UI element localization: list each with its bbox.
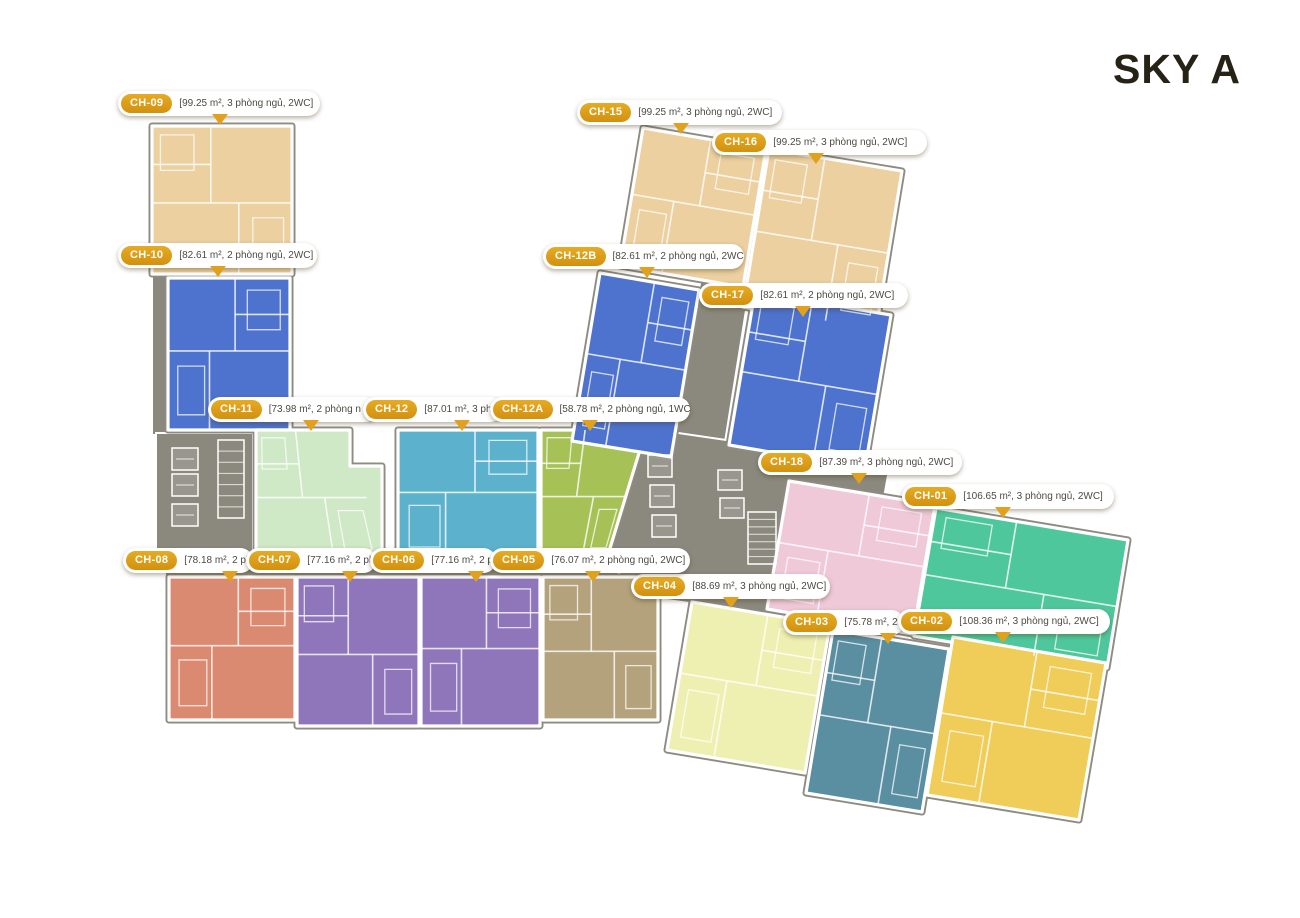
unit-info-text: [87.39 m², 3 phòng ngủ, 2WC] xyxy=(819,457,953,468)
label-pointer-icon xyxy=(212,114,228,125)
label-bubble: CH-10[82.61 m², 2 phòng ngủ, 2WC] xyxy=(118,243,317,268)
floor-plan-drawing xyxy=(0,0,1300,918)
unit-code-pill[interactable]: CH-05 xyxy=(493,551,544,570)
label-pointer-icon xyxy=(995,632,1011,643)
label-pointer-icon xyxy=(851,473,867,484)
unit-code-pill[interactable]: CH-02 xyxy=(901,612,952,631)
unit-label-CH-02[interactable]: CH-02[108.36 m², 3 phòng ngủ, 2WC] xyxy=(898,609,1110,634)
unit-info-text: [73.98 m², 2 phòng n xyxy=(269,404,361,415)
unit-CH-07[interactable] xyxy=(297,577,419,726)
unit-label-CH-12B[interactable]: CH-12B[82.61 m², 2 phòng ngủ, 2WC] xyxy=(543,244,744,269)
unit-label-CH-01[interactable]: CH-01[106.65 m², 3 phòng ngủ, 2WC] xyxy=(902,484,1114,509)
label-bubble: CH-12[87.01 m², 3 phò xyxy=(363,397,503,422)
label-bubble: CH-17[82.61 m², 2 phòng ngủ, 2WC] xyxy=(699,283,908,308)
unit-label-CH-06[interactable]: CH-06[77.16 m², 2 p xyxy=(370,548,496,573)
label-pointer-icon xyxy=(454,420,470,431)
unit-label-CH-08[interactable]: CH-08[78.18 m², 2 ph xyxy=(123,548,253,573)
page-title: SKY A xyxy=(1113,46,1241,93)
unit-code-pill[interactable]: CH-12A xyxy=(493,400,553,419)
label-bubble: CH-15[99.25 m², 3 phòng ngủ, 2WC] xyxy=(577,100,782,125)
label-pointer-icon xyxy=(808,153,824,164)
unit-label-CH-18[interactable]: CH-18[87.39 m², 3 phòng ngủ, 2WC] xyxy=(758,450,962,475)
label-bubble: CH-07[77.16 m², 2 ph xyxy=(246,548,376,573)
unit-label-CH-10[interactable]: CH-10[82.61 m², 2 phòng ngủ, 2WC] xyxy=(118,243,317,268)
unit-code-pill[interactable]: CH-11 xyxy=(211,400,262,419)
unit-CH-06[interactable] xyxy=(421,577,540,726)
unit-label-CH-17[interactable]: CH-17[82.61 m², 2 phòng ngủ, 2WC] xyxy=(699,283,908,308)
label-pointer-icon xyxy=(303,420,319,431)
unit-info-text: [99.25 m², 3 phòng ngủ, 2WC] xyxy=(179,98,313,109)
unit-code-pill[interactable]: CH-07 xyxy=(249,551,300,570)
label-pointer-icon xyxy=(723,597,739,608)
unit-code-pill[interactable]: CH-10 xyxy=(121,246,172,265)
unit-label-CH-07[interactable]: CH-07[77.16 m², 2 ph xyxy=(246,548,376,573)
unit-label-CH-09[interactable]: CH-09[99.25 m², 3 phòng ngủ, 2WC] xyxy=(118,91,320,116)
unit-info-text: [76.07 m², 2 phòng ngủ, 2WC] xyxy=(551,555,685,566)
unit-code-pill[interactable]: CH-01 xyxy=(905,487,956,506)
label-pointer-icon xyxy=(468,571,484,582)
label-pointer-icon xyxy=(639,267,655,278)
unit-CH-11[interactable] xyxy=(256,430,382,560)
unit-label-CH-11[interactable]: CH-11[73.98 m², 2 phòng n xyxy=(208,397,378,422)
unit-info-text: [99.25 m², 3 phòng ngủ, 2WC] xyxy=(773,137,907,148)
unit-info-text: [99.25 m², 3 phòng ngủ, 2WC] xyxy=(638,107,772,118)
label-bubble: CH-11[73.98 m², 2 phòng n xyxy=(208,397,378,422)
label-bubble: CH-08[78.18 m², 2 ph xyxy=(123,548,253,573)
label-bubble: CH-12A[58.78 m², 2 phòng ngủ, 1WC] xyxy=(490,397,690,422)
label-bubble: CH-18[87.39 m², 3 phòng ngủ, 2WC] xyxy=(758,450,962,475)
label-bubble: CH-01[106.65 m², 3 phòng ngủ, 2WC] xyxy=(902,484,1114,509)
unit-code-pill[interactable]: CH-15 xyxy=(580,103,631,122)
label-pointer-icon xyxy=(222,571,238,582)
unit-code-pill[interactable]: CH-12B xyxy=(546,247,606,266)
unit-info-text: [82.61 m², 2 phòng ngủ, 2WC] xyxy=(179,250,313,261)
unit-label-CH-16[interactable]: CH-16[99.25 m², 3 phòng ngủ, 2WC] xyxy=(712,130,927,155)
unit-info-text: [87.01 m², 3 phò xyxy=(424,404,497,415)
unit-info-text: [106.65 m², 3 phòng ngủ, 2WC] xyxy=(963,491,1103,502)
label-pointer-icon xyxy=(582,420,598,431)
floor-plan-page: CH-09[99.25 m², 3 phòng ngủ, 2WC]CH-15[9… xyxy=(0,0,1300,918)
label-pointer-icon xyxy=(995,507,1011,518)
unit-label-CH-03[interactable]: CH-03[75.78 m², 2 xyxy=(783,610,904,635)
label-pointer-icon xyxy=(673,123,689,134)
unit-code-pill[interactable]: CH-03 xyxy=(786,613,837,632)
unit-label-CH-15[interactable]: CH-15[99.25 m², 3 phòng ngủ, 2WC] xyxy=(577,100,782,125)
unit-info-text: [75.78 m², 2 xyxy=(844,617,897,628)
label-bubble: CH-02[108.36 m², 3 phòng ngủ, 2WC] xyxy=(898,609,1110,634)
label-pointer-icon xyxy=(795,306,811,317)
unit-info-text: [108.36 m², 3 phòng ngủ, 2WC] xyxy=(959,616,1099,627)
unit-CH-08[interactable] xyxy=(169,577,295,720)
label-pointer-icon xyxy=(880,633,896,644)
label-pointer-icon xyxy=(210,266,226,277)
unit-code-pill[interactable]: CH-08 xyxy=(126,551,177,570)
unit-code-pill[interactable]: CH-18 xyxy=(761,453,812,472)
unit-CH-12[interactable] xyxy=(398,430,538,560)
unit-label-CH-04[interactable]: CH-04[88.69 m², 3 phòng ngủ, 2WC] xyxy=(631,574,830,599)
unit-CH-02[interactable] xyxy=(927,637,1106,820)
label-bubble: CH-12B[82.61 m², 2 phòng ngủ, 2WC] xyxy=(543,244,744,269)
unit-code-pill[interactable]: CH-16 xyxy=(715,133,766,152)
label-bubble: CH-03[75.78 m², 2 xyxy=(783,610,904,635)
unit-label-CH-12[interactable]: CH-12[87.01 m², 3 phò xyxy=(363,397,503,422)
unit-code-pill[interactable]: CH-09 xyxy=(121,94,172,113)
unit-info-text: [77.16 m², 2 ph xyxy=(307,555,374,566)
label-bubble: CH-05[76.07 m², 2 phòng ngủ, 2WC] xyxy=(490,548,690,573)
label-pointer-icon xyxy=(342,571,358,582)
unit-label-CH-05[interactable]: CH-05[76.07 m², 2 phòng ngủ, 2WC] xyxy=(490,548,690,573)
unit-info-text: [58.78 m², 2 phòng ngủ, 1WC] xyxy=(560,404,690,415)
unit-code-pill[interactable]: CH-17 xyxy=(702,286,753,305)
unit-info-text: [82.61 m², 2 phòng ngủ, 2WC] xyxy=(613,251,744,262)
label-bubble: CH-16[99.25 m², 3 phòng ngủ, 2WC] xyxy=(712,130,927,155)
label-pointer-icon xyxy=(585,571,601,582)
unit-label-CH-12A[interactable]: CH-12A[58.78 m², 2 phòng ngủ, 1WC] xyxy=(490,397,690,422)
unit-code-pill[interactable]: CH-06 xyxy=(373,551,424,570)
unit-info-text: [82.61 m², 2 phòng ngủ, 2WC] xyxy=(760,290,894,301)
unit-info-text: [77.16 m², 2 p xyxy=(431,555,493,566)
unit-code-pill[interactable]: CH-04 xyxy=(634,577,685,596)
label-bubble: CH-09[99.25 m², 3 phòng ngủ, 2WC] xyxy=(118,91,320,116)
unit-info-text: [78.18 m², 2 ph xyxy=(184,555,251,566)
label-bubble: CH-04[88.69 m², 3 phòng ngủ, 2WC] xyxy=(631,574,830,599)
label-bubble: CH-06[77.16 m², 2 p xyxy=(370,548,496,573)
unit-code-pill[interactable]: CH-12 xyxy=(366,400,417,419)
unit-info-text: [88.69 m², 3 phòng ngủ, 2WC] xyxy=(692,581,826,592)
